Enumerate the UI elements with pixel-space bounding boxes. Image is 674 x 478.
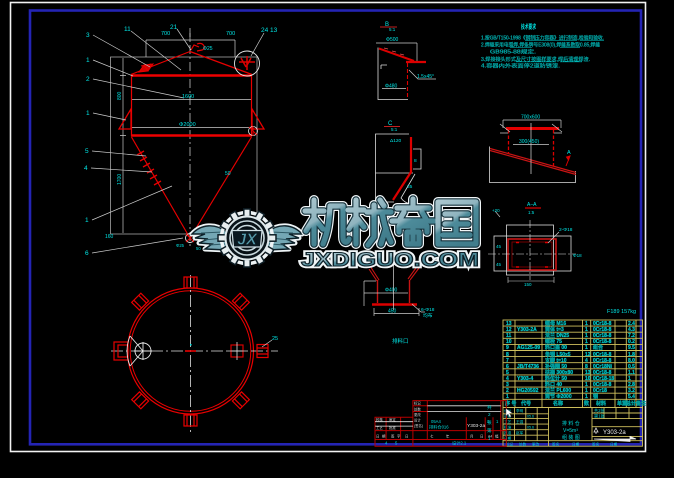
svg-text:螺栓 75: 螺栓 75 [545, 338, 562, 345]
svg-text:名称: 名称 [553, 400, 563, 407]
svg-text:HG20592: HG20592 [517, 388, 539, 394]
svg-text:排料口: 排料口 [392, 337, 409, 345]
svg-text:5: 5 [85, 148, 89, 155]
svg-text:总计: 总计 [626, 400, 636, 407]
svg-text:更改: 更改 [414, 412, 421, 417]
svg-text:标记: 标记 [414, 401, 421, 406]
svg-text:A: A [567, 150, 571, 156]
svg-text:1: 1 [488, 436, 491, 441]
svg-text:处数: 处数 [519, 442, 527, 447]
svg-text:材料: 材料 [596, 400, 606, 407]
svg-text:日: 日 [405, 435, 408, 439]
svg-text:组 装 图: 组 装 图 [562, 434, 580, 441]
svg-text:24 13: 24 13 [261, 27, 278, 34]
svg-text:处数: 处数 [414, 406, 421, 411]
svg-text:Φ18: Φ18 [573, 253, 582, 258]
svg-text:45: 45 [496, 244, 502, 249]
svg-text:组合: 组合 [593, 344, 604, 351]
svg-text:1: 1 [85, 217, 89, 224]
svg-text:第1张: 第1张 [594, 413, 606, 420]
svg-text:50: 50 [225, 171, 231, 177]
svg-text:35: 35 [407, 184, 413, 190]
svg-text:月: 月 [470, 435, 473, 439]
svg-text:8: 8 [414, 158, 417, 164]
svg-text:设计: 设计 [414, 418, 421, 423]
svg-text:150: 150 [524, 282, 532, 287]
svg-text:签名: 签名 [592, 442, 600, 447]
svg-text:25: 25 [272, 336, 278, 342]
svg-text:张: 张 [487, 419, 492, 426]
svg-text:450: 450 [388, 309, 397, 315]
svg-text:Y303-2a: Y303-2a [467, 423, 485, 429]
svg-text:1600: 1600 [182, 94, 194, 100]
svg-text:筒节 Φ2000: 筒节 Φ2000 [545, 393, 572, 400]
svg-text:工艺: 工艺 [504, 419, 512, 424]
svg-text:Φ25: Φ25 [203, 46, 213, 52]
svg-text:Y303-4: Y303-4 [517, 376, 533, 382]
svg-text:更改: 更改 [532, 442, 540, 447]
svg-text:1: 1 [86, 110, 90, 117]
svg-text:2-Φ18: 2-Φ18 [559, 227, 573, 233]
svg-text:批准: 批准 [389, 425, 396, 430]
svg-text:5.4: 5.4 [628, 394, 635, 400]
svg-text:均布: 均布 [423, 312, 433, 319]
svg-text:Φ500: Φ500 [386, 37, 399, 43]
svg-text:Φ2000: Φ2000 [179, 122, 196, 128]
svg-text:签名: 签名 [552, 442, 560, 447]
svg-text:1: 1 [585, 345, 588, 351]
svg-text:1700: 1700 [117, 174, 123, 185]
svg-text:3: 3 [86, 32, 90, 39]
svg-text:5:1: 5:1 [391, 127, 398, 132]
svg-text:代号: 代号 [520, 400, 531, 407]
svg-text:标准: 标准 [504, 425, 512, 430]
svg-text:700x600: 700x600 [521, 115, 540, 121]
svg-text:1.5x45°: 1.5x45° [417, 74, 434, 80]
svg-text:设计2.1: 设计2.1 [452, 440, 467, 447]
svg-text:700: 700 [161, 31, 170, 37]
svg-text:Φ400: Φ400 [385, 288, 398, 294]
svg-text:F189 157kg: F189 157kg [607, 309, 636, 315]
svg-text:钢: 钢 [593, 393, 598, 400]
svg-text:6-Φ18: 6-Φ18 [421, 307, 435, 313]
svg-text:A–A: A–A [527, 202, 537, 208]
svg-text:800: 800 [117, 91, 123, 100]
svg-text:日: 日 [376, 435, 379, 439]
svg-text:料口 40: 料口 40 [545, 381, 562, 388]
svg-text:标记: 标记 [506, 442, 514, 447]
svg-text:Δ120: Δ120 [390, 138, 402, 144]
svg-text:法兰 PL600: 法兰 PL600 [545, 387, 571, 394]
svg-text:Y303-2A: Y303-2A [517, 327, 537, 333]
svg-text:共: 共 [487, 404, 492, 411]
svg-text:(签名): (签名) [414, 423, 423, 428]
svg-text:2.焊缝采用电弧焊,焊条牌号E308(0),焊缝系数取0.8: 2.焊缝采用电弧焊,焊条牌号E308(0),焊缝系数取0.85,焊缝 [481, 42, 600, 49]
svg-text:6: 6 [85, 250, 89, 257]
svg-text:4: 4 [84, 165, 88, 172]
svg-text:支脚 t=10: 支脚 t=10 [544, 357, 567, 364]
svg-text:Φ480: Φ480 [385, 84, 398, 90]
svg-text:螺母 M16: 螺母 M16 [545, 320, 566, 327]
svg-text:日期: 日期 [610, 442, 618, 447]
svg-text:9.5: 9.5 [628, 345, 635, 351]
svg-text:Y303-2a: Y303-2a [603, 430, 626, 436]
svg-text:技术要求: 技术要求 [521, 23, 537, 31]
svg-text:审定: 审定 [389, 417, 396, 422]
svg-text:工艺: 工艺 [376, 425, 383, 430]
svg-text:JX: JX [237, 232, 258, 249]
svg-text:5:1: 5:1 [389, 27, 396, 32]
svg-text:4.容器内外表面停2道防锈漆.: 4.容器内外表面停2道防锈漆. [481, 63, 560, 70]
svg-text:筒体 t=3: 筒体 t=3 [545, 326, 564, 333]
svg-text:11: 11 [124, 26, 131, 33]
svg-text:料口盖 00: 料口盖 00 [545, 344, 567, 351]
svg-text:1: 1 [86, 57, 90, 64]
svg-text:160: 160 [105, 234, 114, 240]
svg-text:王强: 王强 [516, 419, 524, 424]
svg-text:补强圈 50: 补强圈 50 [544, 363, 567, 370]
svg-text:校核: 校核 [376, 417, 383, 422]
svg-text:05.6: 05.6 [527, 415, 534, 419]
svg-text:1:5: 1:5 [528, 210, 535, 215]
svg-text:料位计 50: 料位计 50 [545, 375, 567, 382]
svg-text:V=5m³: V=5m³ [563, 428, 578, 434]
svg-text:05.6: 05.6 [527, 426, 534, 430]
svg-text:李明: 李明 [516, 408, 524, 413]
svg-text:05A4: 05A4 [431, 419, 441, 424]
svg-text:1: 1 [585, 394, 588, 400]
svg-text:GB985-88规定.: GB985-88规定. [490, 49, 536, 56]
svg-text:9: 9 [506, 345, 509, 351]
svg-text:2: 2 [488, 412, 491, 417]
svg-text:50: 50 [196, 246, 201, 251]
svg-text:法兰 DN25: 法兰 DN25 [545, 332, 569, 339]
svg-text:排 料 仓: 排 料 仓 [562, 420, 580, 427]
svg-text:2: 2 [86, 76, 90, 83]
svg-text:赵军: 赵军 [516, 430, 524, 435]
svg-text:AG125-09: AG125-09 [517, 345, 540, 351]
svg-text:备注: 备注 [635, 400, 646, 407]
svg-text:扶梯 300x80: 扶梯 300x80 [545, 369, 573, 376]
svg-text:300(450): 300(450) [519, 139, 539, 145]
svg-text:JXDIGUO.COM: JXDIGUO.COM [301, 249, 479, 271]
svg-text:Φ25: Φ25 [176, 243, 185, 248]
svg-text:第: 第 [487, 427, 492, 434]
svg-text:21: 21 [170, 24, 178, 31]
svg-text:45: 45 [496, 262, 502, 267]
svg-text:1: 1 [506, 394, 509, 400]
svg-text:日期: 日期 [572, 442, 580, 447]
svg-text:JB/T4736: JB/T4736 [517, 364, 539, 370]
svg-text:700: 700 [226, 31, 235, 37]
svg-text:角钢 L50x5: 角钢 L50x5 [544, 351, 571, 358]
svg-text:日: 日 [480, 435, 483, 439]
svg-text:排料仓016: 排料仓016 [429, 424, 449, 431]
svg-text:+20: +20 [492, 208, 500, 213]
